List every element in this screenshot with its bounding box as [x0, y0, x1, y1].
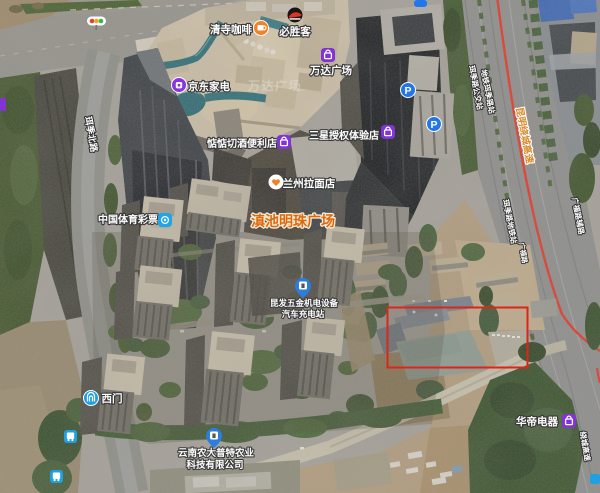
- svg-text:惦惦切酒便利店: 惦惦切酒便利店: [207, 137, 277, 150]
- svg-text:华帝电器: 华帝电器: [516, 415, 558, 428]
- svg-text:京东家电: 京东家电: [188, 80, 230, 93]
- svg-text:万达广场: 万达广场: [309, 64, 352, 77]
- svg-text:汽车充电站: 汽车充电站: [282, 309, 325, 319]
- svg-text:西门: 西门: [102, 392, 123, 405]
- svg-text:必胜客: 必胜客: [278, 25, 311, 38]
- svg-text:科技有限公司: 科技有限公司: [186, 459, 243, 471]
- svg-text:P: P: [404, 85, 411, 97]
- svg-text:P: P: [430, 119, 437, 131]
- svg-text:云南农大普特农业: 云南农大普特农业: [178, 447, 255, 459]
- svg-text:万达广场: 万达广场: [247, 78, 302, 93]
- svg-text:清寺咖啡: 清寺咖啡: [210, 23, 252, 36]
- svg-text:兰州拉面店: 兰州拉面店: [283, 177, 336, 190]
- svg-text:昆发五金机电设备: 昆发五金机电设备: [270, 298, 339, 308]
- svg-text:三星授权体验店: 三星授权体验店: [309, 129, 379, 142]
- svg-text:滇池明珠广场: 滇池明珠广场: [251, 213, 335, 229]
- svg-text:中国体育彩票: 中国体育彩票: [98, 213, 158, 226]
